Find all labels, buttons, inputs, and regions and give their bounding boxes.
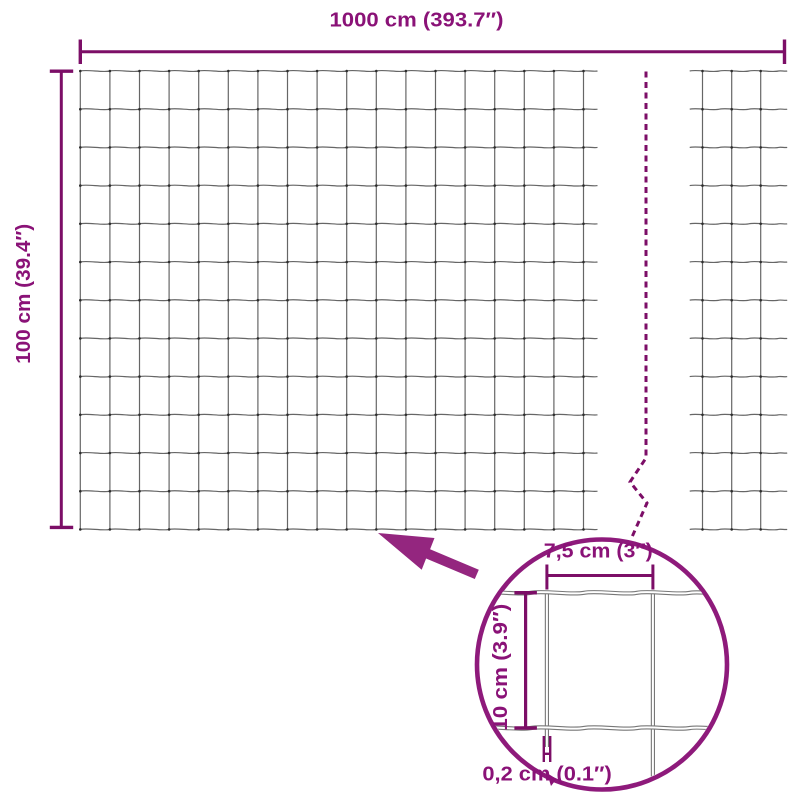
svg-text:0,2 cm (0.1″): 0,2 cm (0.1″) (482, 763, 611, 785)
svg-text:100 cm (39.4″): 100 cm (39.4″) (13, 224, 35, 364)
svg-text:7,5 cm (3″): 7,5 cm (3″) (544, 541, 653, 563)
svg-text:1000 cm (393.7″): 1000 cm (393.7″) (330, 8, 504, 31)
svg-text:10 cm (3.9″): 10 cm (3.9″) (490, 604, 512, 731)
